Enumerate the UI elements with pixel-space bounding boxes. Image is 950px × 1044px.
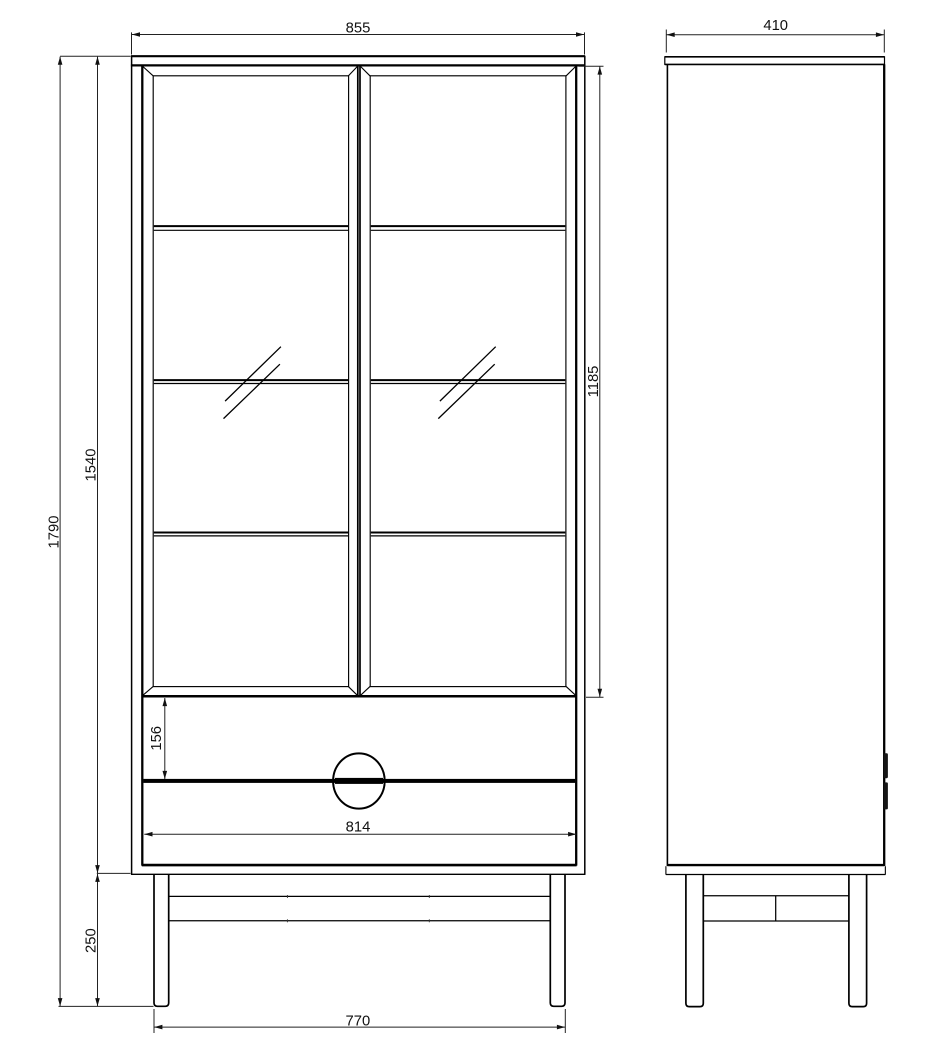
svg-text:770: 770 [346,1013,371,1029]
svg-text:250: 250 [84,928,100,953]
svg-text:1185: 1185 [586,366,602,398]
svg-text:814: 814 [346,819,371,835]
svg-text:156: 156 [149,726,165,751]
svg-text:410: 410 [763,18,788,34]
svg-text:1540: 1540 [84,449,100,482]
svg-text:1790: 1790 [47,516,63,549]
svg-text:855: 855 [346,20,371,36]
